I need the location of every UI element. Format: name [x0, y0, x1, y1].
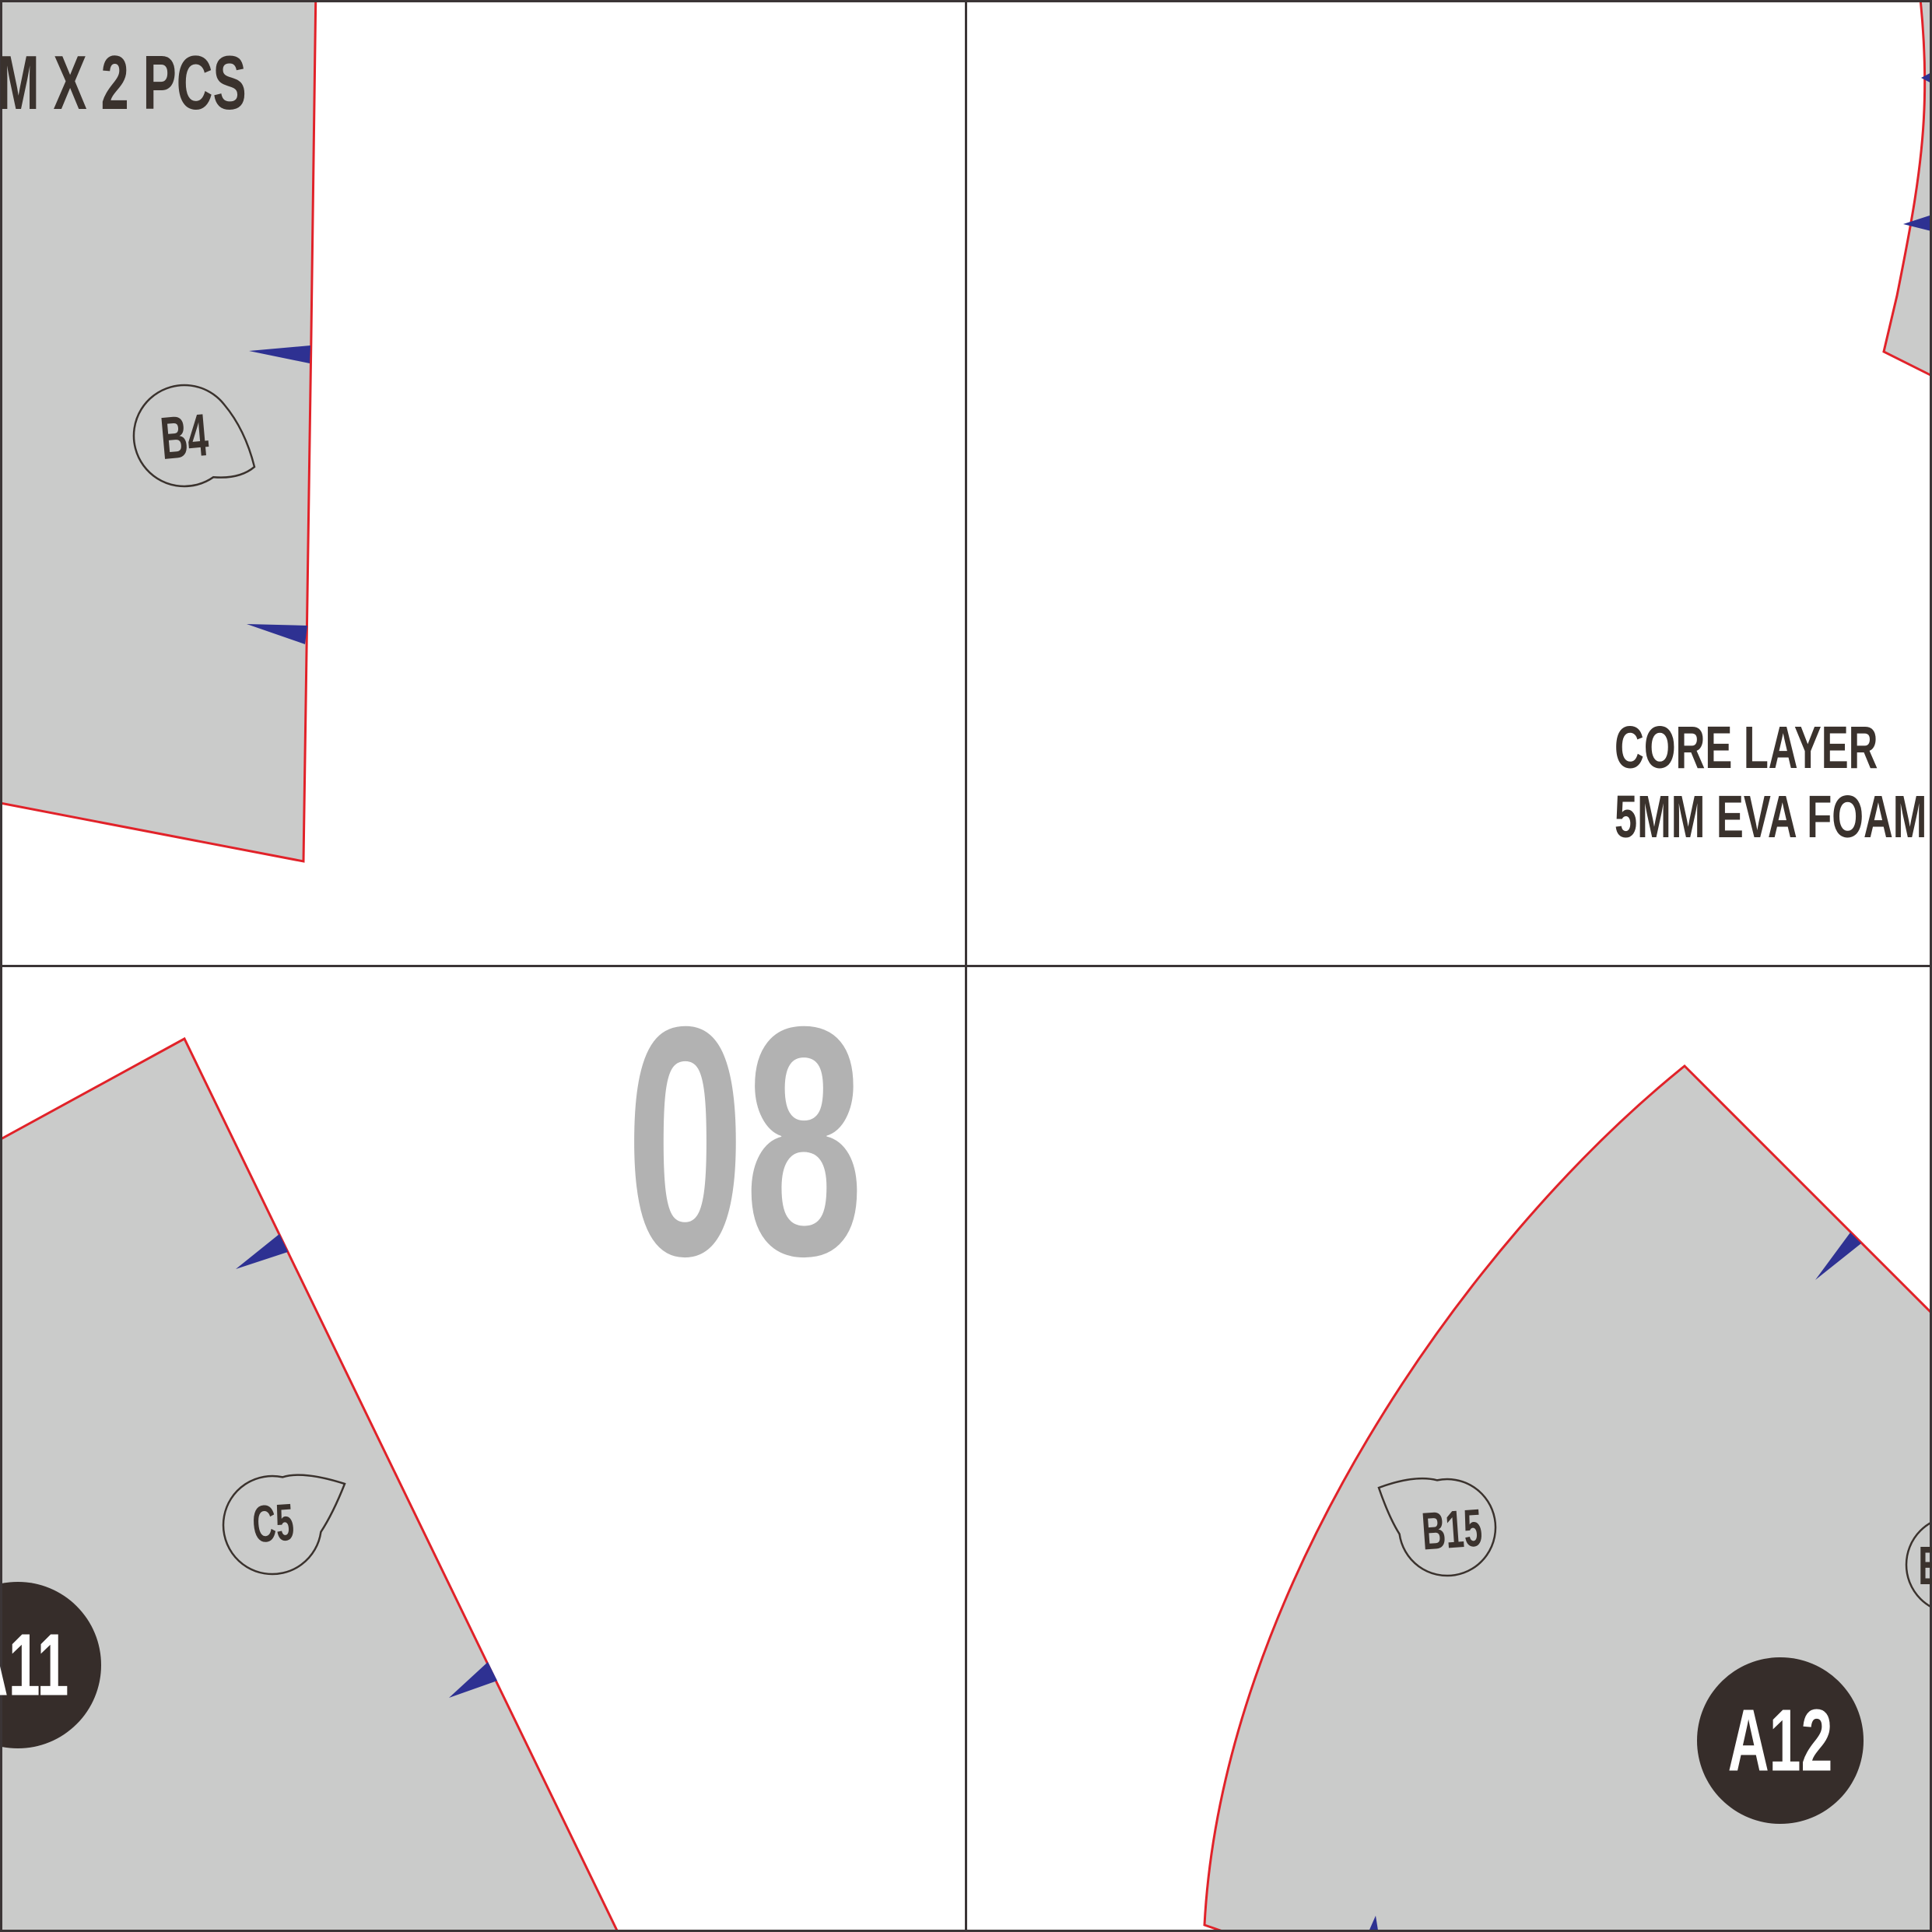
part-label-a12: A12 [1728, 1697, 1833, 1785]
tag-label-b15: B15 [1420, 1501, 1484, 1558]
tag-label-c5: C5 [251, 1496, 296, 1552]
page-number: 08 [626, 979, 864, 1306]
part-label-a11: A11 [0, 1622, 68, 1709]
material-note-right-line1: CORE LAYER [1615, 718, 1878, 778]
pattern-piece-top-right-sliver [1884, 0, 1932, 384]
pattern-graphics [0, 0, 1932, 1932]
pattern-piece-bottom-left [0, 1039, 629, 1932]
material-note-left: AM X 2 PCS [0, 44, 247, 121]
pattern-sheet: AM X 2 PCS CORE LAYER 5MM EVA FOAM 08 B4… [0, 0, 1932, 1932]
pattern-piece-top-left [0, 0, 316, 861]
material-note-right-line2: 5MM EVA FOAM [1615, 787, 1927, 847]
tag-label-edge: B [1918, 1538, 1932, 1593]
tag-label-b4: B4 [158, 405, 211, 469]
